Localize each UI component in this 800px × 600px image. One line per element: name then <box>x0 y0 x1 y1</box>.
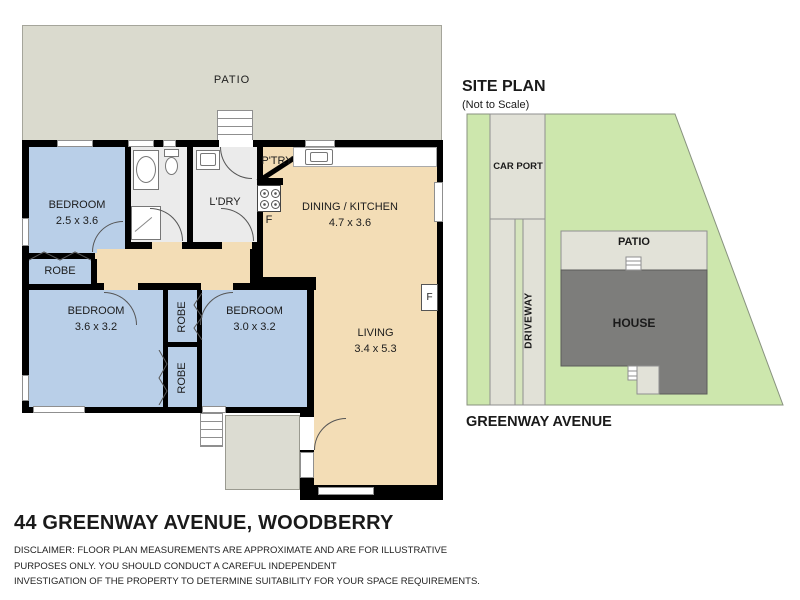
door-gap-bedroom3 <box>201 283 233 290</box>
bedroom3-dims: 3.0 x 3.2 <box>202 319 307 335</box>
siteplan-drawing <box>462 110 792 410</box>
window-bedroom1-left <box>22 218 29 246</box>
toilet-bowl-icon <box>165 157 178 175</box>
living-room <box>314 283 437 485</box>
door-gap-bedroom1 <box>95 253 125 259</box>
pantry-label: P'TRY <box>256 153 298 169</box>
disclaimer-line-1: DISCLAIMER: FLOOR PLAN MEASUREMENTS ARE … <box>14 543 480 559</box>
floorplan-patio-label: PATIO <box>22 72 442 88</box>
door-gap-laundry-patio <box>219 140 253 147</box>
siteplan-house-step <box>637 366 659 394</box>
street-label: GREENWAY AVENUE <box>466 414 612 430</box>
wall-f-label: F <box>421 290 438 306</box>
bedroom3-name: BEDROOM <box>202 303 307 319</box>
window-bedroom2-left <box>22 375 29 401</box>
disclaimer: DISCLAIMER: FLOOR PLAN MEASUREMENTS ARE … <box>14 543 480 590</box>
living-dims: 3.4 x 5.3 <box>314 341 437 357</box>
laundry-label: L'DRY <box>193 194 257 210</box>
robe3-label: ROBE <box>174 348 190 408</box>
siteplan-title: SITE PLAN <box>462 78 546 96</box>
siteplan-carport-label: CAR PORT <box>484 161 552 172</box>
window-bedroom2-bottom <box>33 406 85 413</box>
door-gap-living-porch <box>300 417 314 450</box>
siteplan-driveway-label: DRIVEWAY <box>524 281 535 361</box>
patio-steps-icon <box>217 110 253 143</box>
bedroom2-label: BEDROOM 3.6 x 3.2 <box>29 303 163 335</box>
dining-kitchen-label: DINING / KITCHEN 4.7 x 3.6 <box>263 199 437 231</box>
bedroom2-dims: 3.6 x 3.2 <box>29 319 163 335</box>
robe2-label: ROBE <box>174 287 190 347</box>
robe1-bifold-icon <box>29 251 91 261</box>
living-name: LIVING <box>314 325 437 341</box>
disclaimer-line-2: PURPOSES ONLY. YOU SHOULD CONDUCT A CARE… <box>14 559 480 575</box>
dining-kitchen-name: DINING / KITCHEN <box>263 199 437 215</box>
bedroom2-name: BEDROOM <box>29 303 163 319</box>
door-gap-laundry <box>222 242 252 249</box>
window-bathroom-top <box>128 140 154 147</box>
kitchen-sink-bowl-icon <box>310 152 328 162</box>
window-bedroom3-bottom <box>202 406 226 413</box>
rear-porch <box>225 415 300 490</box>
siteplan-driveway-strip <box>515 219 523 405</box>
dining-kitchen-dims: 4.7 x 3.6 <box>263 215 437 231</box>
window-living-bottom <box>318 487 374 495</box>
bedroom1-name: BEDROOM <box>29 197 125 213</box>
address-title: 44 GREENWAY AVENUE, WOODBERRY <box>14 512 394 535</box>
basin-icon <box>136 156 156 183</box>
siteplan-patio-label: PATIO <box>561 236 707 248</box>
window-kitchen-top <box>305 140 335 147</box>
window-living-porch <box>300 452 314 478</box>
siteplan-patio-steps-icon <box>626 257 641 270</box>
bedroom1-dims: 2.5 x 3.6 <box>29 213 125 229</box>
door-gap-bedroom2 <box>104 283 138 290</box>
door-gap-bathroom <box>152 242 182 249</box>
living-label: LIVING 3.4 x 5.3 <box>314 325 437 357</box>
disclaimer-line-3: INVESTIGATION OF THE PROPERTY TO DETERMI… <box>14 574 480 590</box>
bedroom1-label: BEDROOM 2.5 x 3.6 <box>29 197 125 229</box>
laundry-tub-bowl-icon <box>200 153 216 166</box>
floorplan-page: PATIO F F <box>0 0 800 600</box>
siteplan-house-steps-icon <box>628 366 637 380</box>
bedroom3-label: BEDROOM 3.0 x 3.2 <box>202 303 307 335</box>
toilet-tank-icon <box>164 149 179 157</box>
porch-steps-icon <box>200 413 223 447</box>
window-toilet-top <box>163 140 176 147</box>
siteplan-house-label: HOUSE <box>561 316 707 330</box>
wall-stub-hall-living <box>250 277 316 290</box>
robe3-bifold-icon <box>158 350 168 405</box>
window-bedroom1-top <box>57 140 93 147</box>
robe1-label: ROBE <box>29 263 91 279</box>
